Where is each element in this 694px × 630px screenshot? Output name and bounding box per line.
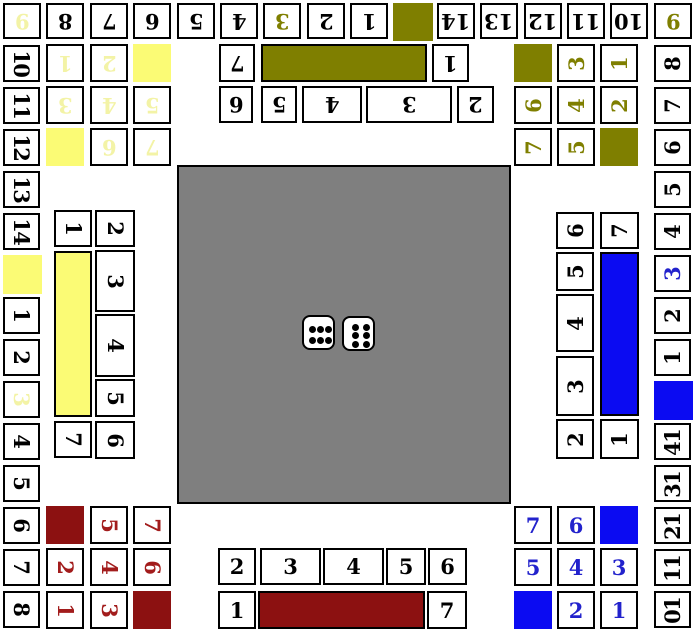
track-left-cell-6[interactable]: 6	[3, 507, 40, 544]
track-right-cell-7[interactable]: 7	[654, 87, 691, 124]
track-left-cell-2[interactable]: 2	[3, 339, 40, 376]
stable-red-piece[interactable]	[133, 591, 171, 629]
track-top-cell-5[interactable]: 5	[177, 3, 215, 39]
track-right-cell-8[interactable]: 8	[654, 45, 691, 82]
die-pip	[352, 324, 359, 331]
track-top-piece[interactable]	[393, 3, 433, 41]
home-blue-cell-1[interactable]: 1	[600, 419, 639, 459]
track-left-cell-10[interactable]: 10	[3, 45, 40, 82]
die-pip	[317, 337, 324, 344]
track-left-cell-4[interactable]: 4	[3, 423, 40, 460]
stable-yellow-cell-5[interactable]: 5	[133, 86, 171, 124]
stable-red-cell-5[interactable]: 5	[90, 506, 128, 544]
home-olive-cell-5[interactable]: 5	[261, 86, 297, 123]
die-pip	[363, 341, 370, 348]
stable-blue-cell-6[interactable]: 6	[557, 506, 595, 544]
stable-yellow-cell-2[interactable]: 2	[90, 44, 128, 82]
stable-red-cell-2[interactable]: 2	[46, 548, 84, 586]
track-left-cell-1[interactable]: 1	[3, 297, 40, 334]
home-blue-piece-bar[interactable]	[600, 252, 639, 416]
track-top-cell-9[interactable]: 9	[654, 3, 692, 39]
home-yellow-cell-7[interactable]: 7	[54, 421, 92, 458]
die-pip	[317, 326, 324, 333]
track-top-cell-13[interactable]: 13	[480, 3, 518, 39]
track-top-cell-9[interactable]: 9	[3, 3, 41, 39]
track-top-cell-6[interactable]: 6	[133, 3, 171, 39]
home-red-cell-2[interactable]: 2	[218, 548, 256, 585]
die-pip	[325, 337, 332, 344]
home-blue-cell-7[interactable]: 7	[600, 212, 639, 249]
stable-olive-cell-5[interactable]: 5	[557, 128, 595, 166]
stable-blue-cell-1[interactable]: 1	[600, 591, 638, 629]
stable-olive-cell-2[interactable]: 2	[600, 86, 638, 124]
home-blue-cell-5[interactable]: 5	[556, 252, 594, 291]
home-yellow-cell-6[interactable]: 6	[95, 421, 135, 459]
track-left-cell-14[interactable]: 14	[3, 213, 40, 250]
track-top-cell-1[interactable]: 1	[350, 3, 388, 39]
track-left-cell-13[interactable]: 13	[3, 171, 40, 208]
track-top-cell-2[interactable]: 2	[307, 3, 345, 39]
track-right-cell-11[interactable]: 11	[654, 549, 691, 586]
stable-red-cell-7[interactable]: 7	[133, 506, 171, 544]
home-red-cell-6[interactable]: 6	[428, 548, 467, 585]
home-olive-cell-7[interactable]: 7	[219, 44, 255, 82]
stable-olive-cell-6[interactable]: 6	[514, 86, 552, 124]
stable-red-piece[interactable]	[46, 506, 84, 544]
stable-yellow-piece[interactable]	[133, 44, 171, 82]
home-yellow-cell-2[interactable]: 2	[95, 210, 135, 247]
home-olive-cell-3[interactable]: 3	[366, 86, 452, 123]
die-pip	[363, 324, 370, 331]
track-right-cell-12[interactable]: 12	[654, 507, 691, 544]
stable-red-cell-6[interactable]: 6	[133, 548, 171, 586]
track-right-cell-3[interactable]: 3	[654, 255, 691, 292]
track-right-cell-1[interactable]: 1	[654, 339, 691, 376]
track-left-cell-7[interactable]: 7	[3, 549, 40, 586]
home-blue-cell-2[interactable]: 2	[556, 419, 594, 459]
track-right-cell-4[interactable]: 4	[654, 213, 691, 250]
stable-yellow-cell-3[interactable]: 3	[46, 86, 84, 124]
stable-olive-cell-1[interactable]: 1	[600, 44, 638, 82]
stable-yellow-cell-6[interactable]: 6	[90, 128, 128, 166]
home-blue-cell-6[interactable]: 6	[556, 212, 594, 249]
track-right-cell-5[interactable]: 5	[654, 171, 691, 208]
track-left-cell-11[interactable]: 11	[3, 87, 40, 124]
track-top-cell-11[interactable]: 11	[567, 3, 605, 39]
home-red-cell-7[interactable]: 7	[427, 591, 467, 629]
stable-olive-piece[interactable]	[600, 128, 638, 166]
stable-olive-cell-3[interactable]: 3	[557, 44, 595, 82]
stable-red-cell-3[interactable]: 3	[90, 591, 128, 629]
die-pip	[309, 337, 316, 344]
track-right-cell-6[interactable]: 6	[654, 129, 691, 166]
home-olive-cell-1[interactable]: 1	[432, 44, 469, 82]
track-right-piece[interactable]	[654, 381, 693, 420]
die-pip	[325, 326, 332, 333]
track-left-piece[interactable]	[3, 255, 42, 294]
track-top-cell-7[interactable]: 7	[90, 3, 128, 39]
stable-red-cell-4[interactable]: 4	[90, 548, 128, 586]
track-left-cell-12[interactable]: 12	[3, 129, 40, 166]
track-top-cell-14[interactable]: 14	[437, 3, 475, 39]
track-top-cell-4[interactable]: 4	[220, 3, 258, 39]
track-top-cell-3[interactable]: 3	[263, 3, 301, 39]
track-right-cell-14[interactable]: 14	[654, 423, 691, 460]
stable-blue-piece[interactable]	[600, 506, 638, 544]
stable-olive-cell-7[interactable]: 7	[514, 128, 552, 166]
stable-blue-piece[interactable]	[514, 591, 552, 629]
home-red-cell-5[interactable]: 5	[386, 548, 426, 585]
track-left-cell-3[interactable]: 3	[3, 381, 40, 418]
home-olive-cell-4[interactable]: 4	[302, 86, 362, 123]
stable-olive-cell-4[interactable]: 4	[557, 86, 595, 124]
stable-red-cell-1[interactable]: 1	[46, 591, 84, 629]
stable-olive-piece[interactable]	[514, 44, 552, 82]
track-top-cell-12[interactable]: 12	[524, 3, 562, 39]
stable-blue-cell-4[interactable]: 4	[557, 548, 595, 586]
home-red-piece-bar[interactable]	[258, 591, 425, 629]
track-right-cell-13[interactable]: 13	[654, 465, 691, 502]
home-red-cell-3[interactable]: 3	[260, 548, 321, 585]
home-red-cell-1[interactable]: 1	[218, 591, 256, 629]
home-yellow-cell-5[interactable]: 5	[95, 379, 135, 417]
home-yellow-cell-4[interactable]: 4	[95, 314, 135, 377]
track-left-cell-5[interactable]: 5	[3, 465, 40, 502]
track-right-cell-10[interactable]: 10	[654, 591, 691, 628]
home-yellow-cell-1[interactable]: 1	[54, 210, 92, 247]
home-olive-cell-2[interactable]: 2	[457, 86, 494, 123]
stable-blue-cell-5[interactable]: 5	[514, 548, 552, 586]
die-pip	[352, 341, 359, 348]
track-top-cell-8[interactable]: 8	[46, 3, 84, 39]
stable-yellow-cell-7[interactable]: 7	[133, 128, 171, 166]
home-blue-cell-4[interactable]: 4	[556, 294, 594, 352]
stable-blue-cell-3[interactable]: 3	[600, 548, 638, 586]
die-left[interactable]	[302, 315, 335, 350]
home-olive-cell-6[interactable]: 6	[219, 86, 253, 123]
game-board: 9876543211413121110910111213141234567887…	[0, 0, 694, 630]
stable-yellow-piece[interactable]	[46, 128, 84, 166]
stable-blue-cell-2[interactable]: 2	[557, 591, 595, 629]
track-right-cell-2[interactable]: 2	[654, 297, 691, 334]
home-olive-piece-bar[interactable]	[261, 44, 427, 82]
stable-blue-cell-7[interactable]: 7	[514, 506, 552, 544]
die-pip	[309, 326, 316, 333]
die-pip	[363, 332, 370, 339]
stable-yellow-cell-4[interactable]: 4	[90, 86, 128, 124]
home-yellow-piece-bar[interactable]	[54, 251, 92, 417]
track-left-cell-8[interactable]: 8	[3, 591, 40, 628]
track-top-cell-10[interactable]: 10	[610, 3, 648, 39]
die-right[interactable]	[342, 316, 375, 351]
home-blue-cell-3[interactable]: 3	[556, 356, 594, 416]
stable-yellow-cell-1[interactable]: 1	[46, 44, 84, 82]
home-red-cell-4[interactable]: 4	[323, 548, 384, 585]
home-yellow-cell-3[interactable]: 3	[95, 250, 135, 312]
die-pip	[352, 332, 359, 339]
